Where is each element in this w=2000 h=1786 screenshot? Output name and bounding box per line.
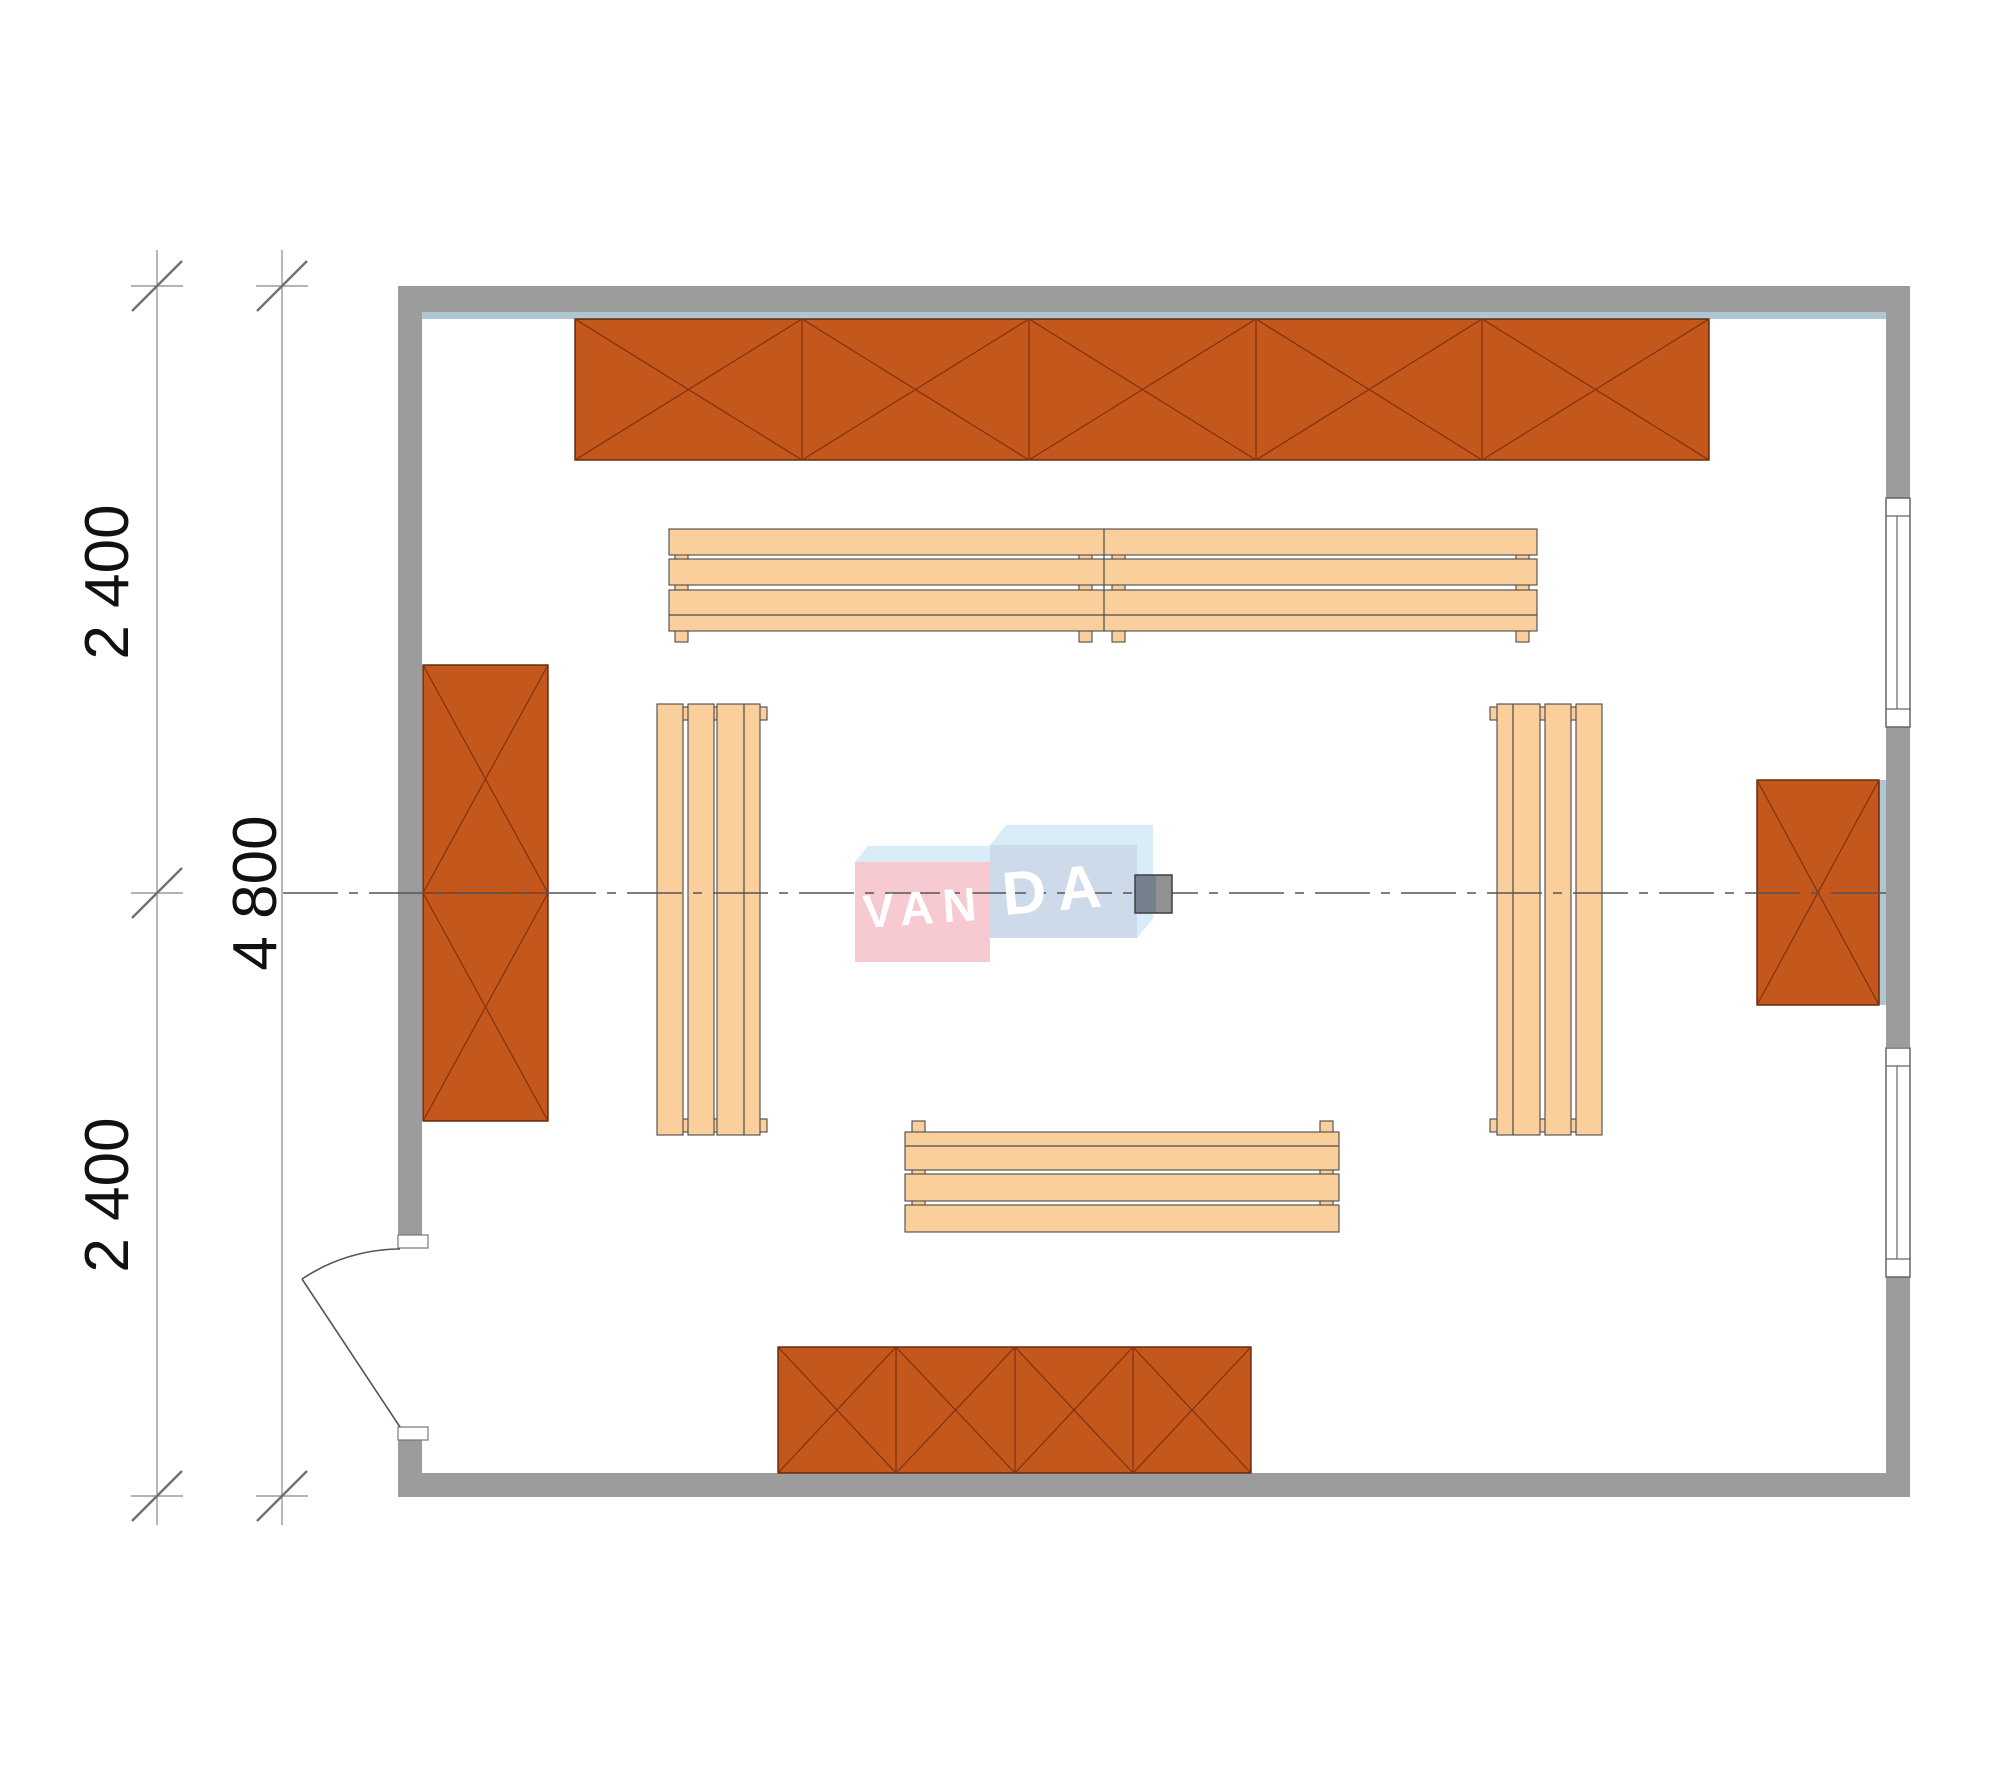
bench-slat — [657, 704, 683, 1135]
door-jamb-top — [398, 1235, 428, 1248]
window-upper — [1886, 498, 1910, 727]
bench-right-vertical — [1497, 704, 1602, 1135]
door-leaf — [302, 1279, 400, 1427]
logo-text-van: VAN — [861, 877, 987, 938]
bench-bottom — [905, 1132, 1339, 1232]
column-post-right-half — [1156, 875, 1172, 913]
bench-slat — [1545, 704, 1571, 1135]
wall-left-upper — [398, 286, 422, 1235]
dimension-label-bottom: 2 400 — [73, 1117, 142, 1272]
dimension-label-total: 4 800 — [221, 815, 290, 970]
column-post-left-half — [1135, 875, 1156, 913]
dimension-lines: 2 400 4 800 2 400 — [73, 250, 308, 1525]
door — [302, 1235, 428, 1440]
bench-slat — [688, 704, 714, 1135]
wall-right-middle — [1886, 727, 1910, 1047]
wall-left-lower-stub — [398, 1440, 422, 1473]
cabinet-row-top — [575, 319, 1709, 460]
column-post-marker — [1135, 875, 1172, 913]
bench-slat — [669, 529, 1537, 555]
wall-right-lower — [1886, 1277, 1910, 1497]
bench-left-vertical — [657, 704, 760, 1135]
logo-right-top-face — [990, 825, 1153, 845]
wall-top — [398, 286, 1910, 312]
door-jamb-bottom — [398, 1427, 428, 1440]
logo-text-da: DA — [999, 851, 1115, 928]
bench-seat-board — [1497, 704, 1540, 1135]
cabinet-row-bottom — [778, 1347, 1251, 1473]
bench-seat-board — [669, 590, 1537, 631]
dimension-label-top: 2 400 — [73, 504, 142, 659]
bench-slat — [905, 1174, 1339, 1201]
window-lower — [1886, 1048, 1910, 1277]
bench-slat — [905, 1205, 1339, 1232]
wall-right-upper — [1886, 286, 1910, 498]
bench-slat — [669, 559, 1537, 585]
logo-left-top-face — [855, 846, 1003, 862]
bench-seat-board — [905, 1132, 1339, 1170]
window-frame — [1886, 498, 1910, 727]
bench-slat — [1576, 704, 1602, 1135]
window-frame — [1886, 1048, 1910, 1277]
floor-plan-page: 2 400 4 800 2 400 — [0, 0, 2000, 1786]
floor-plan-drawing: 2 400 4 800 2 400 — [0, 0, 2000, 1786]
wall-bottom — [398, 1473, 1910, 1497]
bench-top-double — [669, 529, 1537, 631]
bench-seat-board — [717, 704, 760, 1135]
wall-lining-top — [422, 312, 1886, 319]
door-swing-arc — [302, 1249, 400, 1279]
